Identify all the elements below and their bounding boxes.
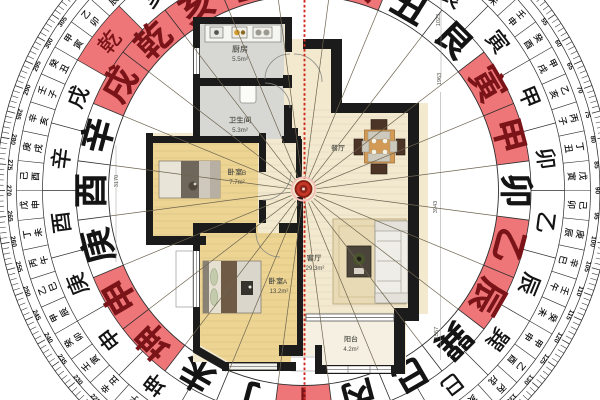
svg-text:1963: 1963	[437, 73, 443, 85]
svg-text:275: 275	[6, 159, 14, 171]
svg-text:13.2m²: 13.2m²	[270, 289, 289, 295]
svg-text:A: A	[283, 279, 288, 286]
svg-text:95: 95	[592, 212, 600, 220]
svg-text:3943: 3943	[433, 201, 439, 213]
svg-text:265: 265	[6, 210, 14, 222]
svg-text:270: 270	[5, 185, 12, 196]
svg-text:5.3m²: 5.3m²	[232, 127, 248, 134]
svg-text:3170: 3170	[114, 175, 120, 187]
svg-text:90: 90	[594, 187, 600, 195]
svg-text:5.5m²: 5.5m²	[232, 56, 248, 63]
svg-text:B: B	[242, 170, 246, 177]
svg-text:85: 85	[592, 161, 600, 169]
svg-text:80: 80	[589, 135, 597, 144]
svg-text:4.2m²: 4.2m²	[343, 347, 358, 353]
svg-text:1557: 1557	[434, 327, 440, 339]
svg-text:29.3m²: 29.3m²	[306, 266, 325, 272]
svg-text:1023: 1023	[436, 14, 442, 26]
